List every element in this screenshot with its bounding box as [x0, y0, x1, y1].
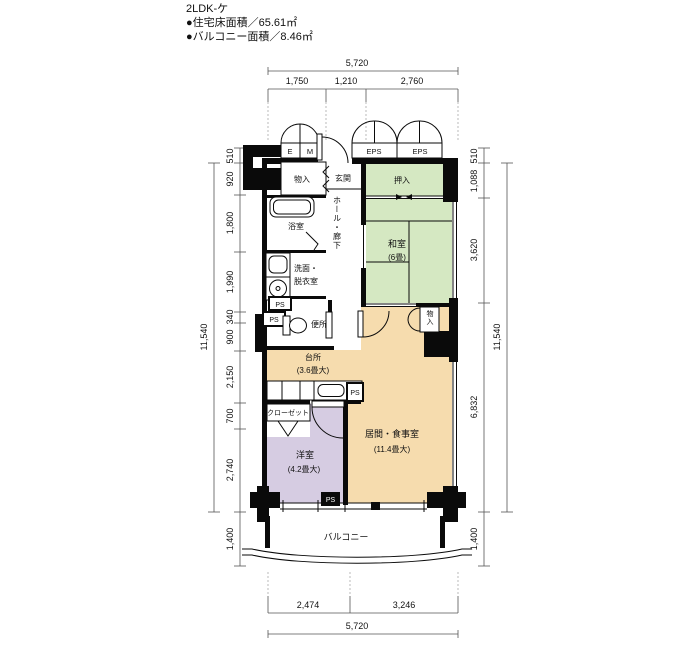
- dim-right-overall: 11,540: [492, 324, 502, 351]
- ps-label-3: PS: [350, 390, 360, 397]
- entrance-label: 玄関: [335, 173, 351, 183]
- western-label: 洋室: [296, 449, 314, 460]
- balcony-post-right: [440, 516, 445, 548]
- dim-left-seg-8: 2,740: [225, 459, 235, 482]
- dim-top-seg-1: 1,210: [335, 76, 358, 86]
- page-background: [0, 0, 700, 650]
- dim-left-balcony: 1,400: [225, 528, 235, 551]
- balcony-label: バルコニー: [324, 532, 369, 542]
- meter-m-label: M: [307, 147, 313, 156]
- floor-plan-svg: 2LDK-ケ ●住宅床面積／65.61㎡ ●バルコニー面積／8.46㎡ 5,72…: [0, 0, 700, 650]
- kitchen-size-label: (3.6畳大): [297, 365, 330, 375]
- eps-label-1: EPS: [366, 147, 381, 156]
- washitsu-size-label: (6畳): [388, 253, 406, 262]
- dim-right-seg-1: 1,088: [469, 170, 479, 193]
- dim-bottom-seg-0: 2,474: [297, 600, 320, 610]
- dim-left-seg-4: 340: [225, 309, 235, 324]
- dim-left-seg-3: 1,990: [225, 271, 235, 294]
- washitsu-label: 和室: [388, 238, 406, 249]
- toilet-tank-icon: [283, 316, 290, 335]
- dim-left-seg-5: 900: [225, 329, 235, 344]
- balcony-post-left: [265, 516, 270, 548]
- kitchen-label: 台所: [305, 352, 321, 362]
- dim-right-balcony: 1,400: [469, 528, 479, 551]
- ps-label-1: PS: [275, 302, 285, 309]
- living-label: 居間・食事室: [365, 428, 419, 439]
- dim-right-seg-0: 510: [469, 148, 479, 163]
- plan-title: 2LDK-ケ: [186, 2, 228, 15]
- dim-left-seg-0: 510: [225, 148, 235, 163]
- living-size-label: (11.4畳大): [374, 444, 411, 454]
- dim-left-overall: 11,540: [199, 324, 209, 351]
- bathroom-label: 浴室: [288, 221, 304, 231]
- closet-label: クローゼット: [267, 408, 309, 417]
- storage-label-entry: 物入: [294, 174, 310, 184]
- toilet-label: 便所: [311, 319, 327, 329]
- entry-storage: 物入: [281, 162, 329, 195]
- dim-right-seg-3: 6,832: [469, 396, 479, 419]
- western-size-label: (4.2畳大): [288, 464, 321, 474]
- entrance-door-leaf: [317, 134, 322, 160]
- washroom-label-2: 脱衣室: [294, 276, 318, 286]
- ps-bottom: PS: [321, 492, 340, 506]
- eps-label-2: EPS: [412, 147, 427, 156]
- dim-top-total: 5,720: [346, 58, 369, 68]
- oshiire-label: 押入: [394, 175, 410, 185]
- washroom-label-1: 洗面・: [294, 263, 318, 273]
- balcony-area-text: ●バルコニー面積／8.46㎡: [186, 29, 313, 43]
- ps-label-2: PS: [269, 317, 279, 324]
- toilet-bowl-icon: [290, 318, 307, 333]
- storage-label-living: 物入: [426, 309, 434, 326]
- dim-left-seg-6: 2,150: [225, 366, 235, 389]
- dim-right-seg-2: 3,620: [469, 239, 479, 262]
- dim-left-seg-7: 700: [225, 408, 235, 423]
- meter-e-label: E: [287, 147, 292, 156]
- floor-area-text: ●住宅床面積／65.61㎡: [186, 15, 297, 29]
- floor-plan-page: 2LDK-ケ ●住宅床面積／65.61㎡ ●バルコニー面積／8.46㎡ 5,72…: [0, 0, 700, 650]
- dim-bottom-total: 5,720: [346, 621, 369, 631]
- dim-top-seg-2: 2,760: [401, 76, 424, 86]
- dim-left-seg-1: 920: [225, 171, 235, 186]
- hall-label: ホール・廊下: [333, 196, 342, 250]
- ps-label-4: PS: [326, 497, 336, 504]
- dim-left-seg-2: 1,800: [225, 212, 235, 235]
- toilet-door-leaf: [326, 312, 332, 338]
- dim-bottom-seg-1: 3,246: [393, 600, 416, 610]
- dim-top-seg-0: 1,750: [286, 76, 309, 86]
